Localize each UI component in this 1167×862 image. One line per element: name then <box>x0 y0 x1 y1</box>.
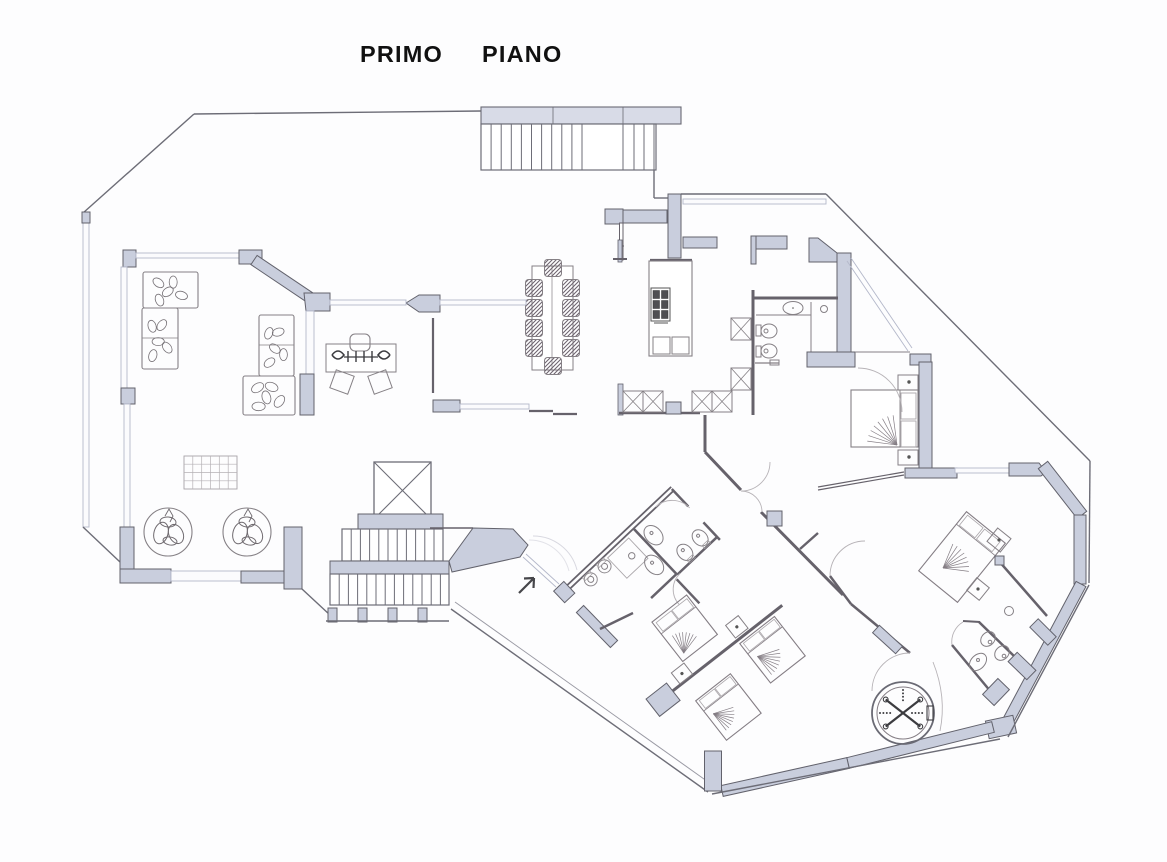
svg-text:PIANO: PIANO <box>482 41 562 67</box>
svg-text:PRIMO: PRIMO <box>360 41 443 67</box>
